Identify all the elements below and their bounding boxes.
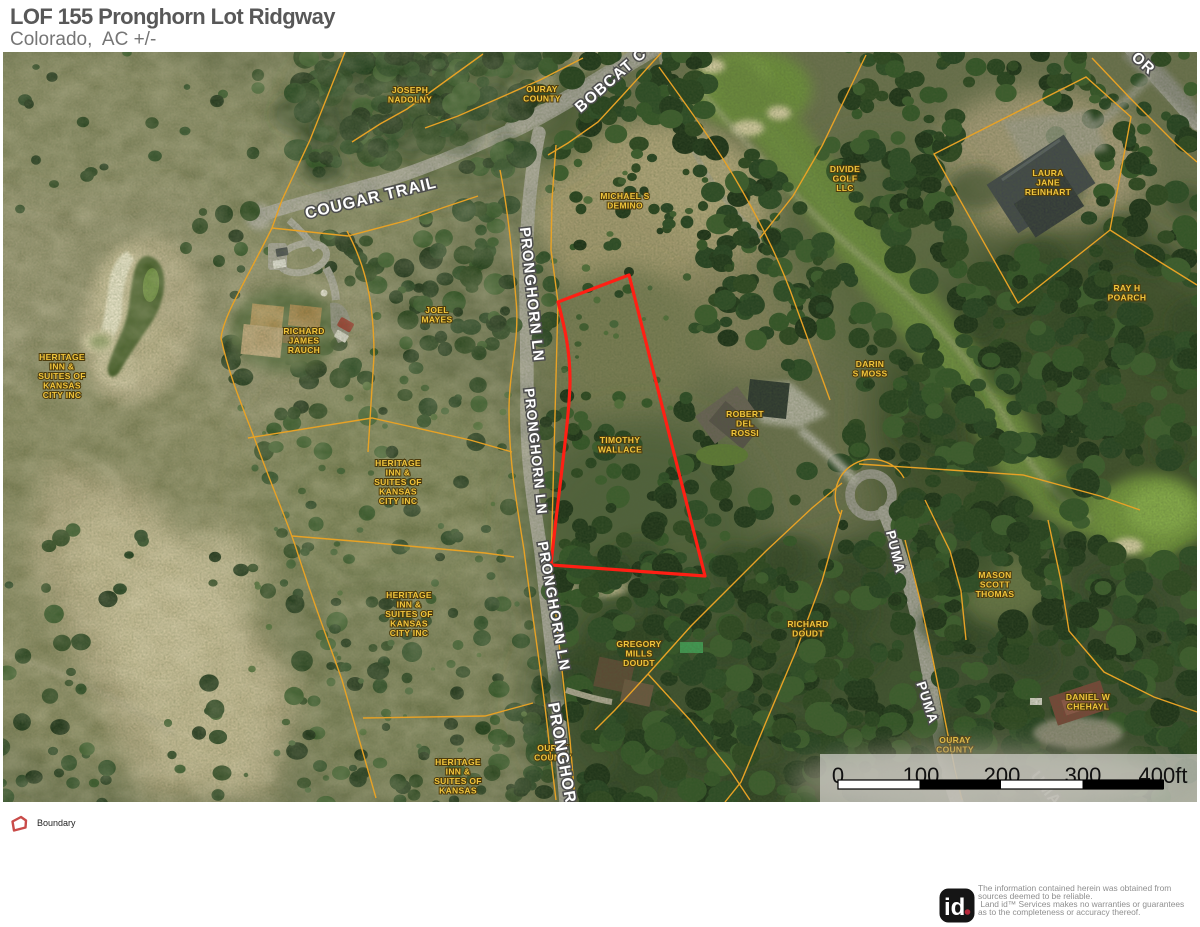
svg-text:MASONSCOTTTHOMAS: MASONSCOTTTHOMAS <box>976 570 1015 599</box>
svg-text:RICHARDJAMESRAUCH: RICHARDJAMESRAUCH <box>283 326 324 355</box>
svg-text:MICHAEL SDEMINO: MICHAEL SDEMINO <box>600 191 649 211</box>
svg-text:JOELMAYES: JOELMAYES <box>422 305 453 325</box>
svg-text:HERITAGEINN &SUITES OFKANSASCI: HERITAGEINN &SUITES OFKANSASCITY INC <box>38 352 86 400</box>
svg-text:TIMOTHYWALLACE: TIMOTHYWALLACE <box>598 435 642 455</box>
svg-text:HERITAGEINN &SUITES OFKANSAS: HERITAGEINN &SUITES OFKANSAS <box>434 757 482 796</box>
svg-text:JOSEPHNADOLNY: JOSEPHNADOLNY <box>388 85 432 105</box>
svg-text:OURAYCOUNTY: OURAYCOUNTY <box>523 84 561 104</box>
svg-text:HERITAGEINN &SUITES OFKANSASCI: HERITAGEINN &SUITES OFKANSASCITY INC <box>385 590 433 638</box>
svg-text:DANIEL WCHEHAYL: DANIEL WCHEHAYL <box>1066 692 1111 712</box>
svg-text:RICHARDDOUDT: RICHARDDOUDT <box>787 619 828 639</box>
svg-text:id: id <box>944 894 965 921</box>
svg-text:HERITAGEINN &SUITES OFKANSASCI: HERITAGEINN &SUITES OFKANSASCITY INC <box>374 458 422 506</box>
svg-text:DARINS MOSS: DARINS MOSS <box>853 359 888 379</box>
